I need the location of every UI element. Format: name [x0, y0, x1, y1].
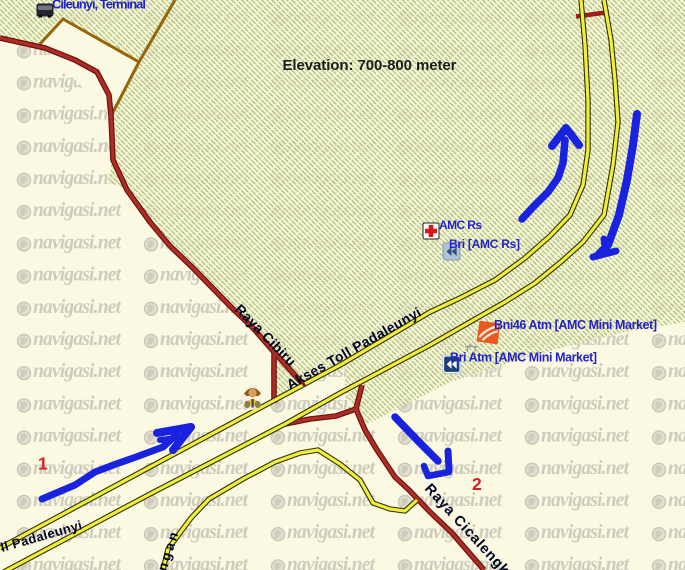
svg-text:1: 1 — [38, 454, 48, 474]
svg-text:Bri [AMC Rs]: Bri [AMC Rs] — [449, 237, 520, 251]
svg-text:Bri Atm [AMC Mini Market]: Bri Atm [AMC Mini Market] — [450, 351, 597, 365]
svg-text:Cileunyi, Terminal: Cileunyi, Terminal — [52, 0, 146, 12]
svg-text:AMC Rs: AMC Rs — [439, 218, 482, 232]
svg-text:2: 2 — [472, 474, 482, 494]
svg-text:Elevation: 700-800 meter: Elevation: 700-800 meter — [283, 57, 457, 74]
svg-text:Bni46 Atm [AMC Mini Market]: Bni46 Atm [AMC Mini Market] — [494, 318, 657, 332]
